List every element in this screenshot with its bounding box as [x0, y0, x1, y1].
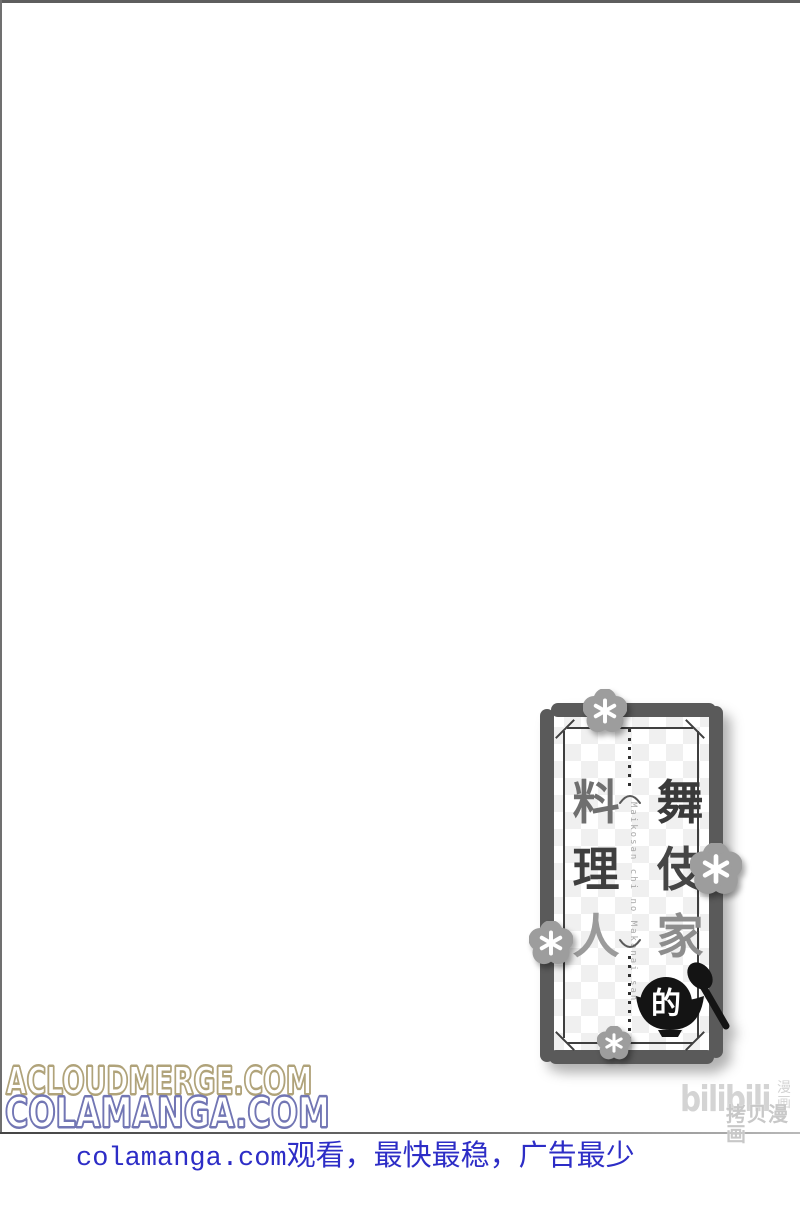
footer-note: colamanga.com观看，最快最稳，广告最少	[76, 1139, 635, 1176]
blossom-bottom-icon	[597, 1026, 631, 1060]
footer-slogan: 观看，最快最稳，广告最少	[287, 1138, 635, 1172]
bowl-spoon-icon: 的	[636, 957, 726, 1037]
bowl-foot-icon	[658, 1030, 682, 1037]
spoon-handle-icon	[704, 988, 726, 1026]
blossom-left-icon	[529, 921, 573, 965]
vertical-paren-open-icon	[620, 796, 640, 803]
bilibili-caption: 拷贝漫画	[726, 1104, 800, 1144]
footer-site-name: colamanga.com	[76, 1144, 287, 1174]
particle-char: 的	[651, 987, 681, 1022]
blossom-right-icon	[690, 843, 742, 895]
vertical-paren-close-icon	[620, 940, 640, 947]
watermark-colamanga: COLAMANGA.COM	[5, 1092, 330, 1134]
manga-page: { "page": { "background": "#ffffff", "bo…	[0, 0, 800, 1225]
page-top-border	[0, 0, 800, 3]
blossom-top-icon	[583, 689, 627, 733]
page-left-border	[0, 0, 2, 1134]
